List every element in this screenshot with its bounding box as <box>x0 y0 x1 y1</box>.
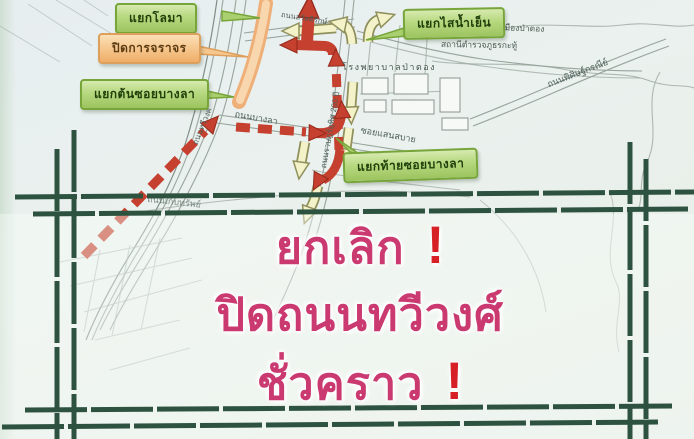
announcement-line-2: ปิดถนนทวีวงศ์ <box>110 287 610 354</box>
announcement-cancel-text: ยกเลิก <box>276 222 405 273</box>
announcement-road-text: ปิดถนนทวีวงศ์ <box>216 289 503 340</box>
announcement-line-1: ยกเลิก! <box>110 218 610 287</box>
exclamation-mark: ! <box>445 352 463 411</box>
announcement-text: ยกเลิก! ปิดถนนทวีวงศ์ ชั่วคราว! <box>110 218 610 423</box>
map-screenshot: ถนนสวัสดิรักษ์ ถนนบางลา ถนนราษฎร์อุทิศ 2… <box>0 0 694 439</box>
announcement-line-3: ชั่วคราว! <box>110 354 610 423</box>
exclamation-mark: ! <box>427 216 445 275</box>
announcement-temporary-text: ชั่วคราว <box>257 358 424 409</box>
